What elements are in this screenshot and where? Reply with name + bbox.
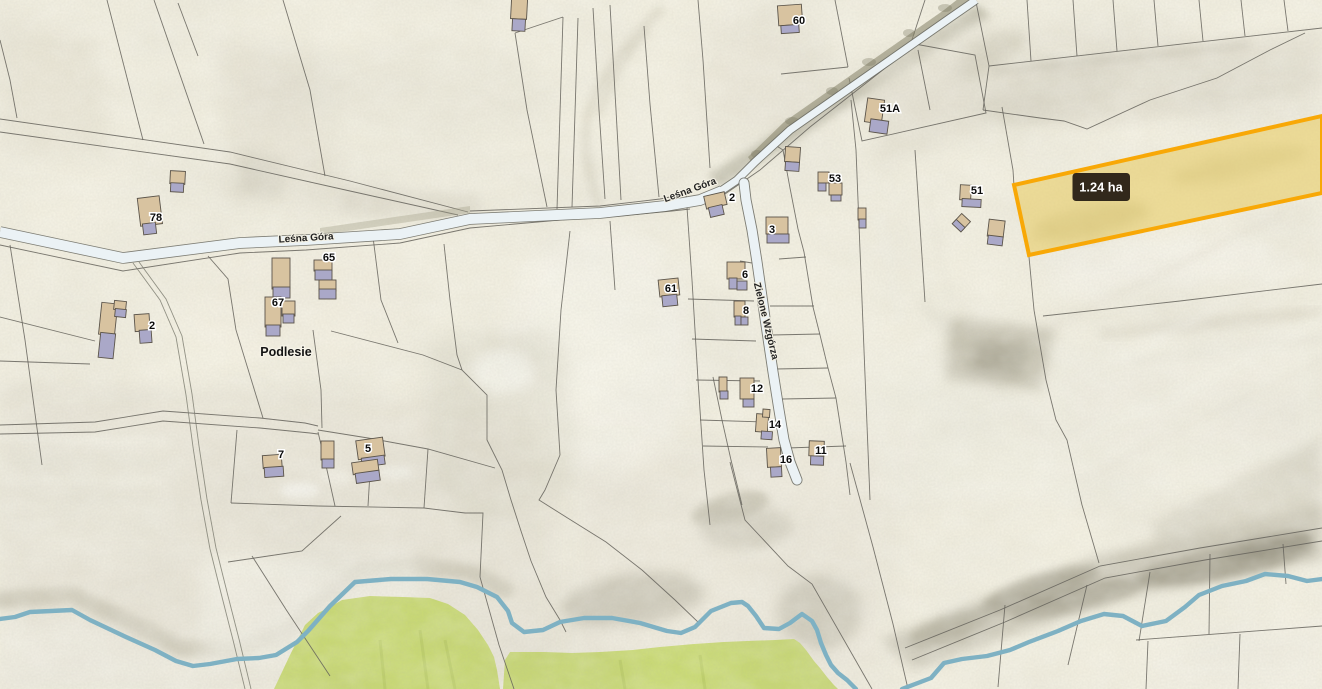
svg-text:6: 6 — [742, 269, 748, 281]
svg-text:78: 78 — [150, 212, 162, 224]
svg-text:2: 2 — [149, 320, 155, 332]
svg-text:3: 3 — [769, 224, 775, 236]
svg-text:67: 67 — [272, 297, 284, 309]
svg-text:61: 61 — [665, 283, 677, 295]
svg-text:12: 12 — [751, 383, 763, 395]
svg-text:60: 60 — [793, 15, 805, 27]
svg-text:2: 2 — [729, 192, 735, 204]
svg-text:5: 5 — [365, 443, 371, 455]
svg-text:Podlesie: Podlesie — [260, 345, 311, 359]
svg-text:53: 53 — [829, 173, 841, 185]
svg-text:11: 11 — [815, 445, 827, 457]
svg-text:8: 8 — [743, 305, 749, 317]
svg-text:14: 14 — [769, 419, 782, 431]
svg-text:65: 65 — [323, 252, 335, 264]
svg-text:1.24 ha: 1.24 ha — [1079, 180, 1123, 195]
svg-text:7: 7 — [278, 449, 284, 461]
svg-text:16: 16 — [780, 454, 792, 466]
svg-text:51A: 51A — [880, 103, 900, 115]
svg-text:51: 51 — [971, 185, 983, 197]
